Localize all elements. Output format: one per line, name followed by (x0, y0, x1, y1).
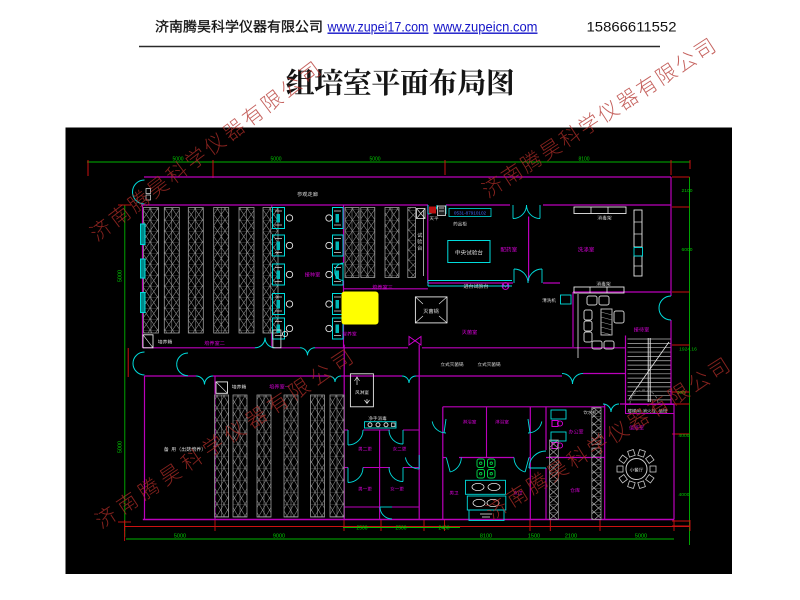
svg-text:2500: 2500 (356, 526, 367, 532)
svg-text:5000: 5000 (118, 270, 124, 282)
svg-text:0531-87910102: 0531-87910102 (454, 211, 487, 216)
svg-text:1924.16: 1924.16 (679, 347, 697, 353)
svg-text:5000: 5000 (118, 441, 124, 453)
svg-text:5000: 5000 (172, 157, 183, 163)
svg-text:2100: 2100 (565, 534, 577, 540)
svg-text:8100: 8100 (578, 157, 589, 163)
svg-text:www.zupeicn.com: www.zupeicn.com (433, 19, 538, 35)
svg-text:4000: 4000 (679, 492, 690, 498)
svg-text:2100: 2100 (682, 188, 693, 194)
svg-text:1500: 1500 (528, 534, 540, 540)
svg-text:8100: 8100 (480, 534, 492, 540)
svg-text:2400: 2400 (438, 526, 449, 532)
svg-text:www.zupei17.com: www.zupei17.com (327, 19, 429, 35)
svg-text:5000: 5000 (369, 157, 380, 163)
svg-text:5000: 5000 (635, 534, 647, 540)
svg-text:9000: 9000 (273, 534, 285, 540)
svg-text:5000: 5000 (270, 157, 281, 163)
svg-text:15866611552: 15866611552 (587, 19, 677, 35)
svg-text:2500: 2500 (395, 526, 406, 532)
svg-text:6000: 6000 (682, 247, 693, 253)
svg-text:5000: 5000 (174, 534, 186, 540)
svg-text:4000: 4000 (679, 433, 690, 439)
